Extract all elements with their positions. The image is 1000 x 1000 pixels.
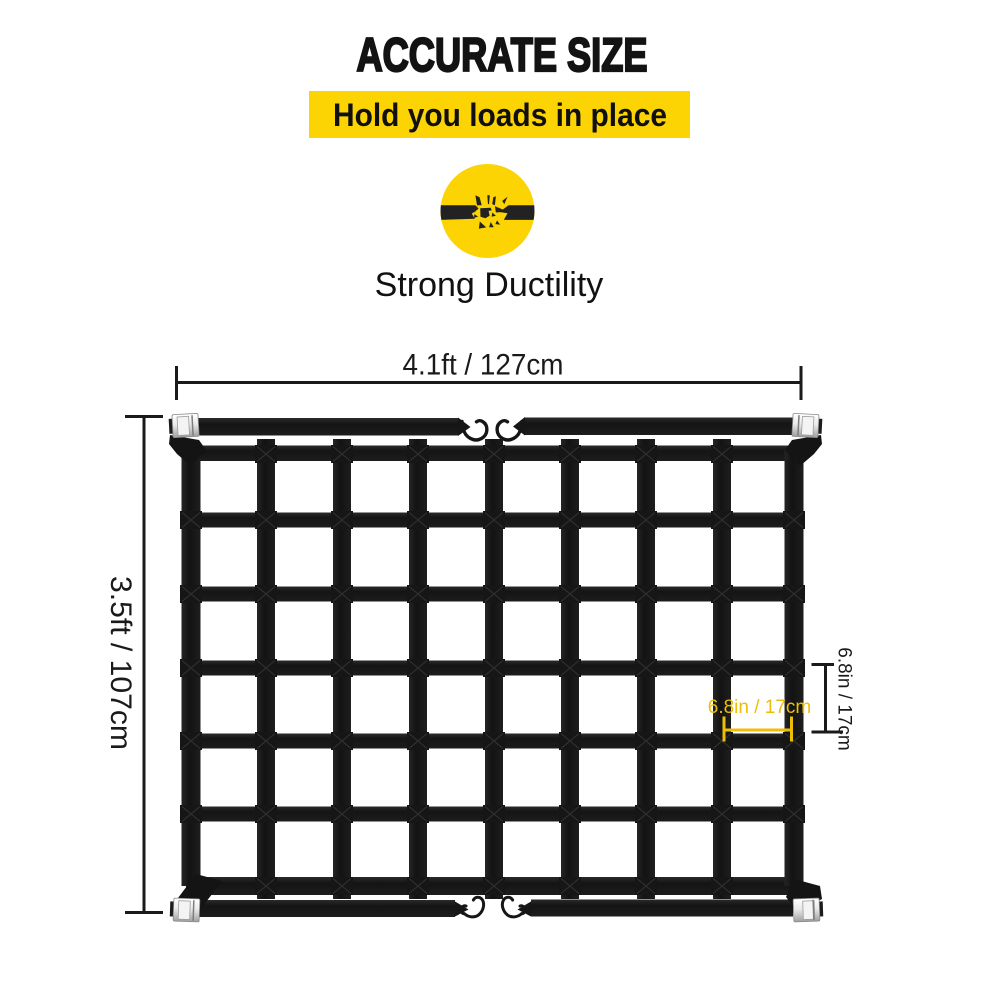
svg-text:4.1ft / 127cm: 4.1ft / 127cm <box>403 349 564 382</box>
svg-text:3.5ft / 107cm: 3.5ft / 107cm <box>104 576 137 750</box>
svg-text:6.8in / 17cm: 6.8in / 17cm <box>708 697 812 718</box>
svg-text:ACCURATE SIZE: ACCURATE SIZE <box>357 29 648 82</box>
svg-text:6.8in / 17cm: 6.8in / 17cm <box>834 647 855 751</box>
svg-text:Strong Ductility: Strong Ductility <box>375 266 604 304</box>
svg-text:Hold you loads in place: Hold you loads in place <box>333 97 667 133</box>
